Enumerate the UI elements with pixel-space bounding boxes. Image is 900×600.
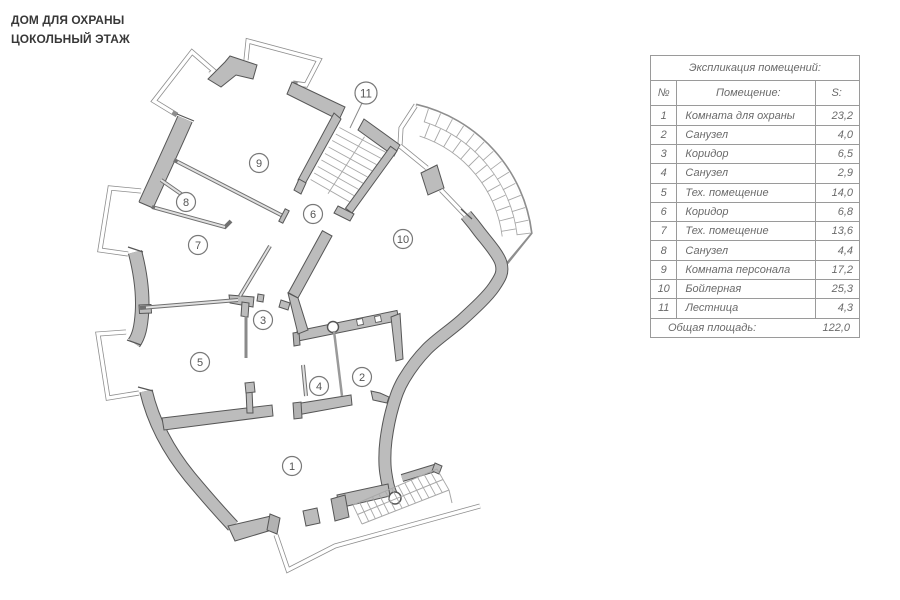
- svg-text:2: 2: [359, 372, 365, 384]
- svg-text:6: 6: [310, 209, 316, 221]
- svg-text:4: 4: [316, 381, 322, 393]
- svg-text:9: 9: [256, 158, 262, 170]
- svg-text:5: 5: [197, 357, 203, 369]
- svg-text:7: 7: [195, 240, 201, 252]
- svg-text:8: 8: [183, 197, 189, 209]
- svg-text:11: 11: [360, 89, 372, 101]
- svg-text:1: 1: [289, 461, 295, 473]
- svg-text:3: 3: [260, 315, 266, 327]
- svg-text:10: 10: [397, 234, 409, 246]
